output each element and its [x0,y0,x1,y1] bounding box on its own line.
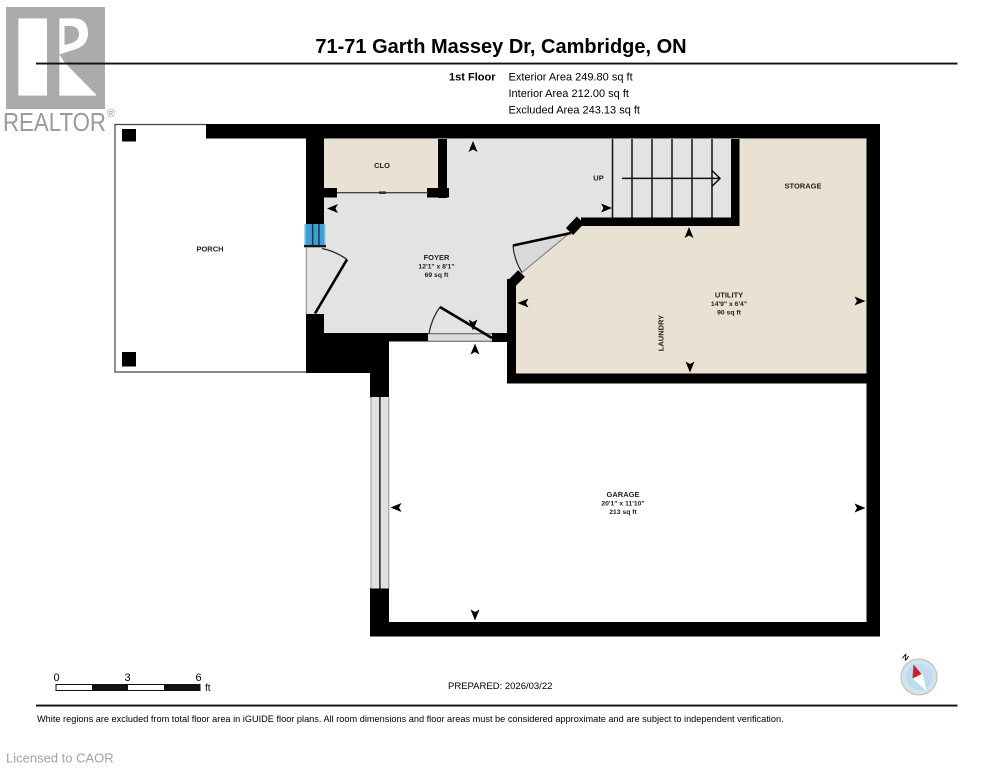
svg-text:0: 0 [53,672,59,684]
svg-text:90 sq ft: 90 sq ft [717,310,742,317]
svg-text:14'9" x 6'4": 14'9" x 6'4" [711,301,747,308]
svg-text:STORAGE: STORAGE [785,182,822,191]
svg-text:GARAGE: GARAGE [607,490,640,499]
svg-text:PORCH: PORCH [196,245,223,254]
svg-text:PREPARED: 2026/03/22: PREPARED: 2026/03/22 [448,681,552,692]
svg-text:6: 6 [195,672,201,684]
svg-text:FOYER: FOYER [424,253,450,262]
svg-text:REALTOR: REALTOR [3,107,106,137]
svg-text:®: ® [107,108,115,120]
svg-text:Excluded Area 243.13 sq ft: Excluded Area 243.13 sq ft [509,105,640,117]
svg-text:Licensed to CAOR: Licensed to CAOR [6,751,114,766]
svg-text:White regions are excluded fro: White regions are excluded from total fl… [37,714,784,724]
svg-text:UP: UP [593,173,603,182]
svg-text:Interior Area 212.00 sq ft: Interior Area 212.00 sq ft [509,88,629,100]
svg-text:CLO: CLO [374,161,390,170]
svg-text:12'1" x 8'1": 12'1" x 8'1" [418,264,454,271]
svg-text:71-71 Garth Massey Dr, Cambrid: 71-71 Garth Massey Dr, Cambridge, ON [315,36,686,58]
svg-text:LAUNDRY: LAUNDRY [657,315,666,351]
svg-text:UTILITY: UTILITY [715,291,743,300]
svg-text:213 sq ft: 213 sq ft [609,509,637,516]
svg-text:3: 3 [124,672,130,684]
svg-text:1st Floor: 1st Floor [449,72,496,84]
svg-text:Exterior Area 249.80 sq ft: Exterior Area 249.80 sq ft [509,72,633,84]
svg-text:ft: ft [205,683,211,694]
svg-text:20'1" x 11'10": 20'1" x 11'10" [601,501,644,508]
svg-text:69 sq ft: 69 sq ft [425,272,450,279]
